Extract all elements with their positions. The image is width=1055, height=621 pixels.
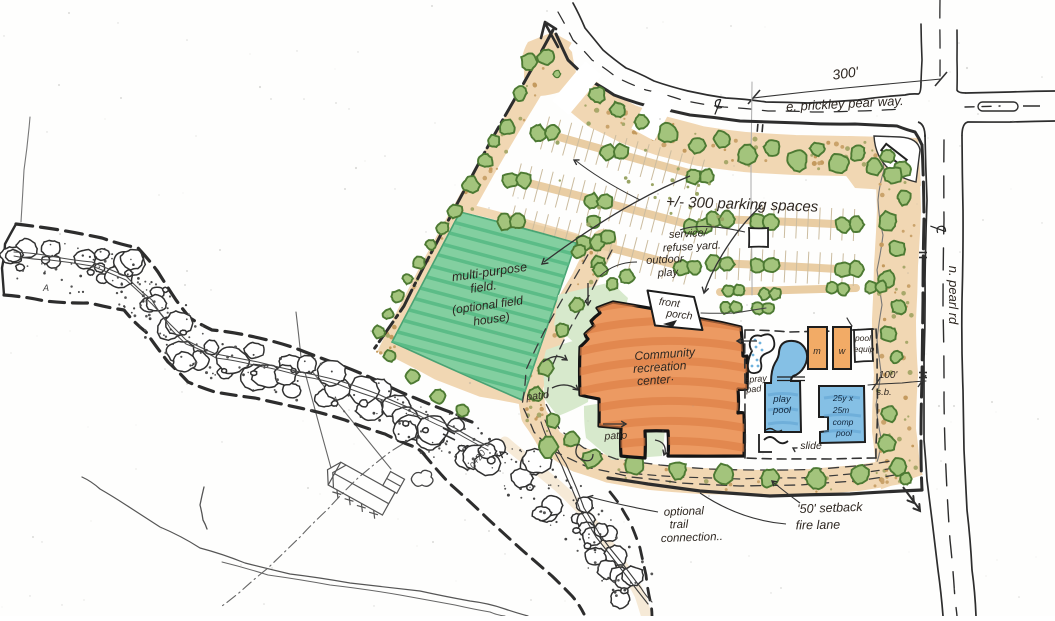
svg-text:25y x: 25y x [832, 393, 854, 403]
svg-text:outdoor: outdoor [646, 253, 685, 267]
svg-text:play: play [656, 266, 679, 279]
svg-text:play: play [772, 394, 792, 405]
svg-text:A: A [42, 283, 49, 293]
svg-text:n. pearl rd: n. pearl rd [946, 266, 961, 325]
svg-text:fire lane: fire lane [796, 518, 841, 533]
svg-text:connection..: connection.. [661, 531, 723, 545]
svg-text:pool: pool [772, 405, 792, 416]
svg-text:pad: pad [745, 383, 763, 394]
svg-text:pool: pool [835, 428, 853, 438]
svg-text:service/: service/ [669, 227, 708, 241]
svg-text:optional: optional [664, 505, 705, 518]
svg-text:pool: pool [854, 333, 872, 343]
svg-text:100': 100' [879, 370, 899, 381]
svg-text:slide: slide [800, 440, 822, 452]
svg-text:patio: patio [525, 389, 550, 403]
svg-text:25m: 25m [832, 405, 850, 415]
svg-text:s.b.: s.b. [876, 387, 891, 398]
svg-text:comp: comp [833, 417, 854, 427]
svg-text:'50' setback: '50' setback [797, 500, 863, 516]
svg-text:m: m [813, 346, 821, 356]
svg-text:trail: trail [669, 519, 688, 532]
svg-text:w: w [839, 346, 846, 356]
svg-text:center·: center· [637, 372, 675, 389]
svg-text:equip: equip [854, 344, 875, 354]
svg-text:patio: patio [603, 429, 628, 442]
